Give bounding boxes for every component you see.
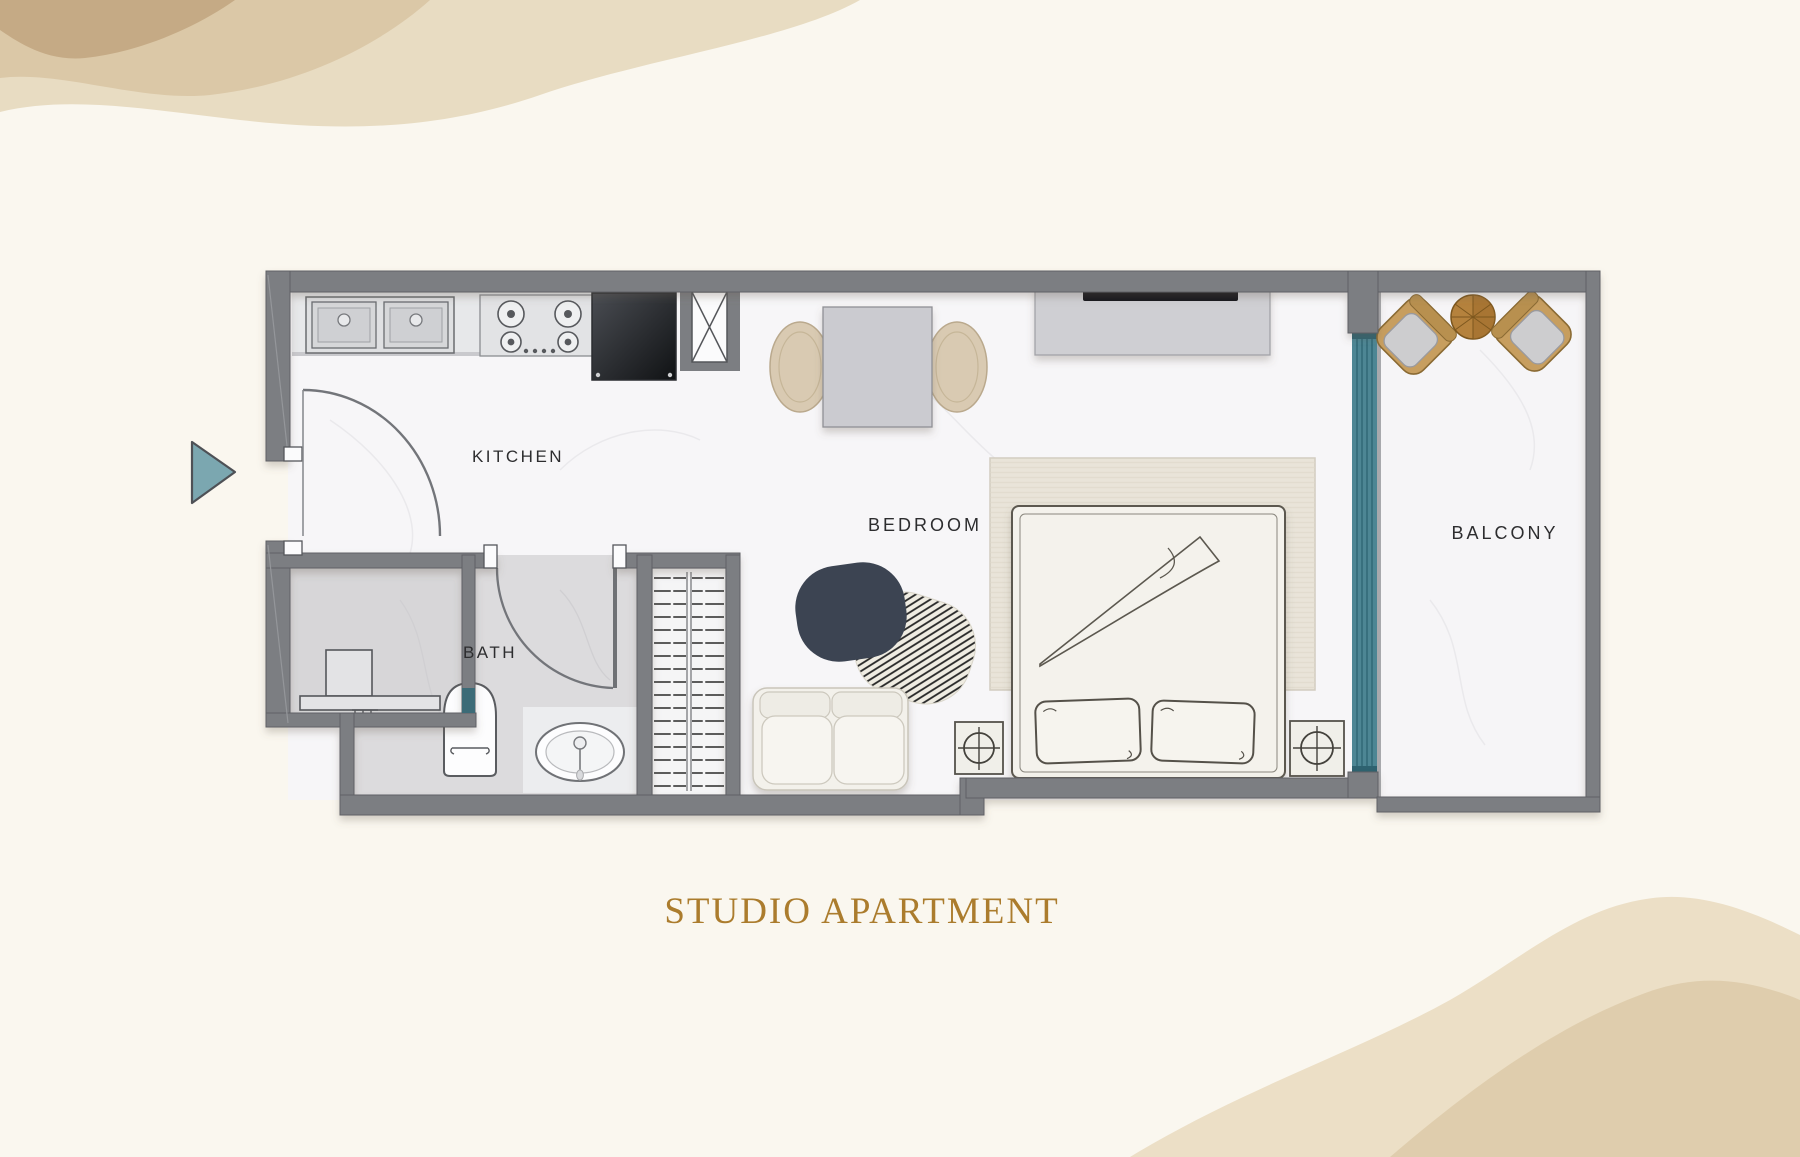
watercolor-top-left (0, 0, 860, 127)
watercolor-bottom-right (1130, 897, 1800, 1157)
wall-window-stub-top (1348, 271, 1378, 333)
double-bed (1012, 506, 1285, 778)
pillow-right (1151, 700, 1255, 764)
wall-top (266, 271, 1600, 292)
sofa (753, 688, 908, 790)
floor-plan-page: KITCHEN BATH BEDROOM BALCONY STUDIO APAR… (0, 0, 1800, 1157)
kitchen-label: KITCHEN (472, 447, 564, 466)
bath-label: BATH (463, 643, 517, 662)
wall-step (340, 713, 354, 808)
window-strip (1352, 292, 1381, 797)
balcony-label: BALCONY (1451, 523, 1558, 543)
wall-wardrobe-right (726, 555, 740, 795)
double-sink (306, 297, 454, 353)
floor-plan-canvas: KITCHEN BATH BEDROOM BALCONY (0, 0, 1800, 1157)
wall-balcony-right (1586, 271, 1600, 812)
utility-floor (290, 555, 476, 713)
plan-title: STUDIO APARTMENT (664, 890, 1059, 933)
balcony-round-table (1451, 295, 1495, 339)
dining-table (823, 307, 932, 427)
wall-bottom-bedroom (966, 778, 1378, 798)
bedroom-label: BEDROOM (868, 515, 982, 535)
wall-utility-bottom (266, 713, 476, 727)
wardrobe (652, 568, 726, 795)
pillow-left (1035, 698, 1141, 764)
divider-accent (462, 688, 475, 713)
shaft-column (680, 288, 740, 371)
wall-bath-top-right (615, 553, 740, 568)
wall-bottom-left (340, 795, 980, 815)
entry-arrow (192, 442, 235, 503)
refrigerator (592, 293, 676, 380)
nightstand-right (1290, 721, 1344, 776)
wall-balcony-bottom (1377, 797, 1600, 812)
gas-hob (480, 295, 597, 356)
washbasin (536, 723, 624, 781)
tv-unit (1035, 288, 1270, 355)
wall-wardrobe-left (637, 555, 652, 795)
nightstand-left (955, 722, 1003, 774)
wall-window-stub-bottom (1348, 772, 1378, 798)
